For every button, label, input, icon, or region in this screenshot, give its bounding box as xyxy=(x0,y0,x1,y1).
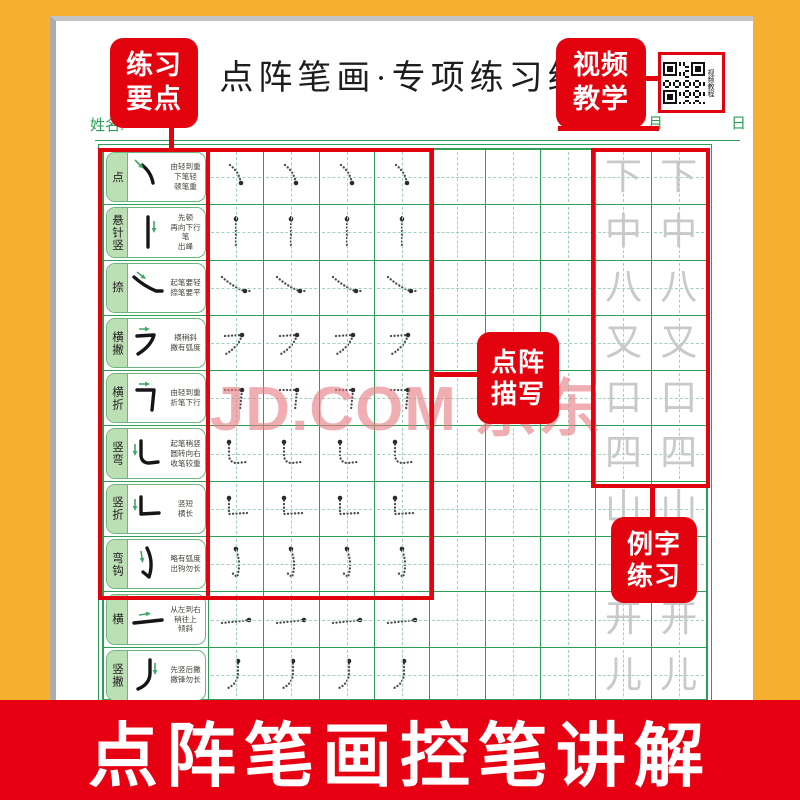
practice-cell xyxy=(541,261,596,316)
stroke-name: 横撇 xyxy=(107,319,128,367)
trace-cell xyxy=(375,205,430,260)
example-char: 儿 xyxy=(660,657,697,694)
trace-cell xyxy=(375,592,430,647)
stroke-label-cell: 点由轻到重 下笔轻 顿笔重 xyxy=(104,150,209,205)
bottom-banner: 点阵笔画控笔讲解 xyxy=(0,700,800,800)
stroke-tip: 先顿 再向下行笔 出峰 xyxy=(168,213,205,252)
example-char: 四 xyxy=(660,435,697,472)
example-char: 又 xyxy=(660,325,697,362)
stroke-tip: 竖短 横长 xyxy=(168,499,205,519)
example-char: 又 xyxy=(605,325,642,362)
trace-dots-icon xyxy=(382,489,422,529)
trace-cell xyxy=(375,537,430,592)
practice-cell xyxy=(430,205,485,260)
stroke-glyph-icon xyxy=(128,378,168,418)
practice-cell xyxy=(486,261,541,316)
trace-cell xyxy=(264,205,319,260)
example-cell: 中 xyxy=(652,205,706,260)
trace-dots-icon xyxy=(271,489,311,529)
stroke-name: 横 xyxy=(107,595,128,643)
practice-cell xyxy=(430,482,485,537)
practice-cell xyxy=(430,150,485,205)
example-char: 下 xyxy=(605,159,642,196)
trace-cell xyxy=(375,648,430,703)
practice-cell xyxy=(430,592,485,647)
trace-dots-icon xyxy=(327,157,367,197)
example-cell: 儿 xyxy=(652,648,706,703)
stroke-label-box: 捺起笔要轻 捺笔要平 xyxy=(106,263,206,313)
trace-dots-icon xyxy=(271,655,311,695)
practice-cell xyxy=(486,205,541,260)
connector-practice-points xyxy=(169,124,174,152)
trace-dots-icon xyxy=(327,212,367,252)
practice-cell xyxy=(430,648,485,703)
trace-cell xyxy=(320,150,375,205)
trace-cell xyxy=(264,592,319,647)
example-char: 中 xyxy=(605,214,642,251)
example-cell: 八 xyxy=(652,261,706,316)
practice-cell xyxy=(541,537,596,592)
practice-cell xyxy=(541,482,596,537)
example-cell: 下 xyxy=(652,150,706,205)
stroke-glyph-icon xyxy=(128,544,168,584)
example-char: 八 xyxy=(605,269,642,306)
example-char: 八 xyxy=(660,269,697,306)
stroke-name: 横折 xyxy=(107,374,128,422)
stroke-name: 捺 xyxy=(107,264,128,312)
stroke-glyph-icon xyxy=(128,268,168,308)
trace-dots-icon xyxy=(382,268,422,308)
trace-cell xyxy=(320,205,375,260)
trace-cell xyxy=(320,261,375,316)
badge-practice-points: 练习 要点 xyxy=(110,38,198,128)
stroke-name: 竖折 xyxy=(107,485,128,533)
stroke-name: 悬针竖 xyxy=(107,208,128,256)
stroke-row: 捺起笔要轻 捺笔要平八八 xyxy=(104,261,706,316)
stroke-label-box: 竖折竖短 横长 xyxy=(106,484,206,534)
connector-dot-trace xyxy=(432,372,479,377)
example-cell: 口 xyxy=(652,371,706,426)
example-char: 儿 xyxy=(605,657,642,694)
trace-cell xyxy=(320,537,375,592)
trace-dots-icon xyxy=(382,600,422,640)
trace-dots-icon xyxy=(216,268,256,308)
trace-cell xyxy=(209,537,264,592)
trace-dots-icon xyxy=(327,600,367,640)
practice-cell xyxy=(486,482,541,537)
stroke-label-cell: 弯钩略有弧度 出钩勿长 xyxy=(104,537,209,592)
example-char: 口 xyxy=(660,380,697,417)
example-char: 开 xyxy=(605,601,642,638)
trace-dots-icon xyxy=(271,268,311,308)
trace-cell xyxy=(209,482,264,537)
trace-cell xyxy=(320,592,375,647)
trace-dots-icon xyxy=(382,655,422,695)
stroke-glyph-icon xyxy=(128,323,168,363)
trace-cell xyxy=(209,592,264,647)
stroke-glyph-icon xyxy=(128,434,168,474)
trace-cell xyxy=(320,482,375,537)
trace-cell xyxy=(209,205,264,260)
stroke-row: 点由轻到重 下笔轻 顿笔重下下 xyxy=(104,150,706,205)
example-char: 下 xyxy=(660,159,697,196)
stroke-label-cell: 捺起笔要轻 捺笔要平 xyxy=(104,261,209,316)
example-cell: 四 xyxy=(652,426,706,481)
practice-cell xyxy=(541,592,596,647)
trace-dots-icon xyxy=(216,655,256,695)
trace-cell xyxy=(375,482,430,537)
qr-code-icon xyxy=(663,62,705,104)
practice-cell xyxy=(486,150,541,205)
product-image: 点阵笔画·专项练习纸一 姓名: 年 月 日 点由轻到重 下笔轻 顿笔重下下悬针竖… xyxy=(0,0,800,800)
stroke-label-box: 点由轻到重 下笔轻 顿笔重 xyxy=(106,152,206,202)
trace-dots-icon xyxy=(216,600,256,640)
practice-cell xyxy=(541,205,596,260)
connector-example-practice xyxy=(650,486,655,520)
qr-code-box: 视频教程 xyxy=(658,52,725,113)
trace-dots-icon xyxy=(216,212,256,252)
stroke-row: 悬针竖先顿 再向下行笔 出峰中中 xyxy=(104,205,706,260)
trace-dots-icon xyxy=(382,212,422,252)
example-cell: 八 xyxy=(596,261,651,316)
example-cell: 儿 xyxy=(596,648,651,703)
trace-dots-icon xyxy=(216,489,256,529)
trace-cell xyxy=(264,537,319,592)
jd-watermark: JD.COM 京东 xyxy=(168,358,643,448)
badge-dot-trace: 点阵 描写 xyxy=(477,332,559,424)
trace-dots-icon xyxy=(327,268,367,308)
practice-cell xyxy=(486,537,541,592)
example-char: 中 xyxy=(660,214,697,251)
practice-cell xyxy=(486,592,541,647)
trace-dots-icon xyxy=(271,157,311,197)
trace-dots-icon xyxy=(216,157,256,197)
stroke-name: 点 xyxy=(107,153,128,201)
practice-cell xyxy=(541,648,596,703)
trace-dots-icon xyxy=(271,212,311,252)
stroke-tip: 从左到右 稍往上 倾斜 xyxy=(168,605,205,635)
stroke-label-cell: 横从左到右 稍往上 倾斜 xyxy=(104,592,209,647)
trace-cell xyxy=(264,261,319,316)
stroke-glyph-icon xyxy=(128,157,168,197)
name-rule-line xyxy=(95,140,740,141)
practice-cell xyxy=(430,537,485,592)
stroke-name: 竖撇 xyxy=(107,651,128,700)
example-char: 开 xyxy=(660,601,697,638)
trace-dots-icon xyxy=(271,600,311,640)
trace-dots-icon xyxy=(327,655,367,695)
stroke-row: 竖撇先竖后撇 撇锋勿长儿儿 xyxy=(104,648,706,703)
trace-dots-icon xyxy=(216,544,256,584)
stroke-label-box: 竖撇先竖后撇 撇锋勿长 xyxy=(106,650,206,701)
practice-cell xyxy=(430,261,485,316)
example-cell: 下 xyxy=(596,150,651,205)
practice-cell xyxy=(541,150,596,205)
stroke-tip: 横稍斜 撇有弧度 xyxy=(168,333,205,353)
trace-cell xyxy=(264,482,319,537)
trace-cell xyxy=(209,150,264,205)
badge-video-teaching: 视频 教学 xyxy=(556,38,646,128)
example-cell: 中 xyxy=(596,205,651,260)
stroke-name: 竖弯 xyxy=(107,429,128,477)
trace-cell xyxy=(209,261,264,316)
badge-example-practice: 例字 练习 xyxy=(611,517,697,603)
stroke-label-box: 横从左到右 稍往上 倾斜 xyxy=(106,594,206,644)
trace-dots-icon xyxy=(327,489,367,529)
trace-dots-icon xyxy=(382,544,422,584)
stroke-name: 弯钩 xyxy=(107,540,128,588)
stroke-label-box: 悬针竖先顿 再向下行笔 出峰 xyxy=(106,207,206,257)
stroke-glyph-icon xyxy=(128,600,168,640)
trace-dots-icon xyxy=(271,544,311,584)
stroke-label-cell: 竖折竖短 横长 xyxy=(104,482,209,537)
stroke-tip: 由轻到重 下笔轻 顿笔重 xyxy=(168,162,205,192)
stroke-label-box: 弯钩略有弧度 出钩勿长 xyxy=(106,539,206,589)
stroke-tip: 略有弧度 出钩勿长 xyxy=(168,554,205,574)
stroke-label-cell: 竖撇先竖后撇 撇锋勿长 xyxy=(104,648,209,703)
trace-cell xyxy=(320,648,375,703)
stroke-tip: 先竖后撇 撇锋勿长 xyxy=(168,665,205,685)
example-cell: 又 xyxy=(652,316,706,371)
trace-dots-icon xyxy=(327,544,367,584)
trace-cell xyxy=(375,150,430,205)
stroke-label-cell: 悬针竖先顿 再向下行笔 出峰 xyxy=(104,205,209,260)
trace-cell xyxy=(264,150,319,205)
trace-cell xyxy=(264,648,319,703)
trace-dots-icon xyxy=(382,157,422,197)
stroke-glyph-icon xyxy=(128,489,168,529)
stroke-tip: 起笔要轻 捺笔要平 xyxy=(168,278,205,298)
stroke-glyph-icon xyxy=(128,655,168,695)
trace-cell xyxy=(209,648,264,703)
stroke-glyph-icon xyxy=(128,212,168,252)
trace-cell xyxy=(375,261,430,316)
date-day-label: 日 xyxy=(731,112,746,133)
qr-code-label: 视频教程 xyxy=(707,69,714,97)
practice-cell xyxy=(486,648,541,703)
